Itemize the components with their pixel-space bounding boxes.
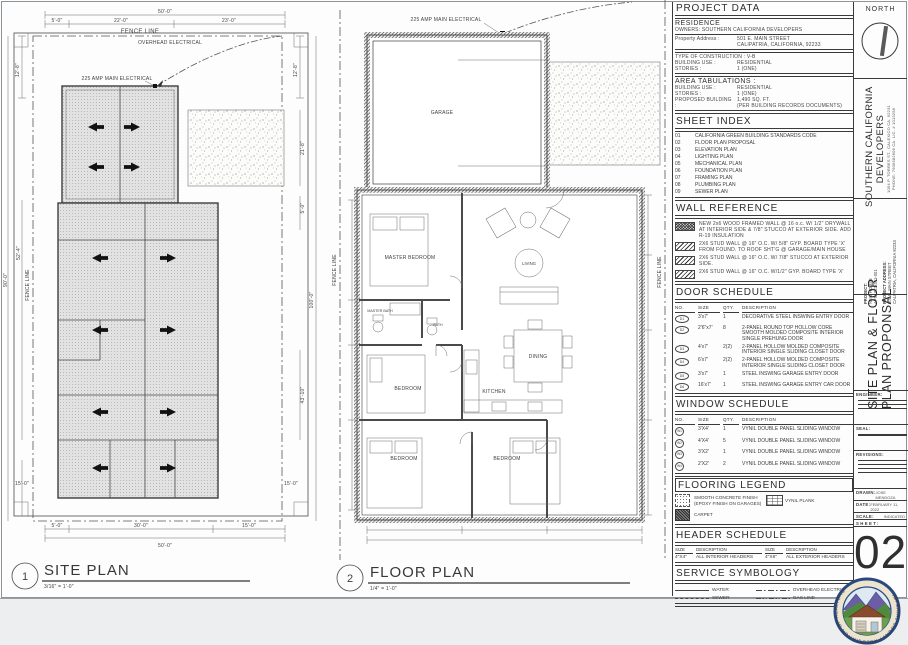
- svg-text:5'-0": 5'-0": [52, 18, 63, 24]
- date-label: DATE:: [856, 502, 870, 512]
- date-value: FEBRUARY 11, 2022: [870, 502, 905, 512]
- company-phone-license: PHONE: 7605582606 CA. LIC. # 1013258: [891, 91, 896, 207]
- sheet-index-list: 01CALIFORNIA GREEN BUILDING STANDARDS CO…: [675, 133, 853, 196]
- wall-reference-heading: WALL REFERENCE: [675, 202, 853, 214]
- floor-electrical-annotation: 225 AMP MAIN ELECTRICAL: [411, 2, 632, 36]
- carpet-swatch: [675, 509, 690, 521]
- sewer-label: SEWER: [712, 596, 750, 601]
- sewer-line-symbol: [675, 598, 709, 599]
- property-address-2: CALIPATRIA, CALIFORNIA, 92233: [737, 42, 853, 48]
- svg-text:21'-8": 21'-8": [300, 141, 306, 155]
- bath-label: BATH: [433, 323, 443, 327]
- svg-text:15'-0": 15'-0": [242, 523, 256, 529]
- door-schedule-table: NO. SIZE QTY. DESCRIPTION D13'x7'1DECORA…: [675, 304, 853, 392]
- bedroom1-label: BEDROOM: [394, 386, 421, 392]
- svg-text:43'-10": 43'-10": [300, 387, 306, 404]
- stories-value: 1 (ONE): [737, 66, 853, 72]
- fence-line-label-vertical: FENCE LINE: [25, 269, 31, 301]
- window-tag: W3: [675, 450, 684, 459]
- title-block: PROJECT DATA RESIDENCE OWNERS: SOUTHERN …: [672, 2, 853, 596]
- drawn-label: DRAWN:: [856, 490, 875, 500]
- site-plan-tag: 1: [22, 571, 28, 583]
- site-plan-title-text: SITE PLAN: [44, 562, 130, 579]
- site-plan-drawing: FENCE LINE FENCE LINE 50'-0" 5'-0" 22'-0…: [0, 0, 332, 598]
- bottom-dimensions: 5'-0" 30'-0" 15'-0" 50'-0": [45, 523, 285, 549]
- door-schedule-heading: DOOR SCHEDULE: [675, 286, 853, 298]
- floor-main-electrical-label: 225 AMP MAIN ELECTRICAL: [411, 17, 482, 23]
- bedroom2-label: BEDROOM: [390, 456, 417, 462]
- svg-text:22'-0": 22'-0": [114, 18, 128, 24]
- garage-label: GARAGE: [431, 110, 454, 116]
- owners-line: OWNERS: SOUTHERN CALIFORNIA DEVELOPERS: [675, 27, 853, 33]
- floor-patio-area: [547, 62, 660, 165]
- door-tag: D1: [675, 315, 689, 323]
- window-tag: W1: [675, 427, 684, 436]
- door-tag: D5: [675, 372, 689, 380]
- site-main-electrical-label: 225 AMP MAIN ELECTRICAL: [82, 76, 153, 82]
- wall-ref-2: 2X6 STUD WALL @ 16" O.C. W/ 5/8" GYP. BO…: [699, 241, 853, 253]
- residence-heading: RESIDENCE: [675, 20, 853, 27]
- master-bath-label: MASTER BATH: [367, 309, 393, 313]
- wall-swatch-diag-1: [675, 242, 695, 251]
- top-dimensions: 50'-0" 5'-0" 22'-0" 23'-0": [45, 9, 285, 28]
- window-schedule-table: NO. SIZE QTY. DESCRIPTION W13'X4'1VYNIL …: [675, 416, 853, 472]
- gas-line-symbol: [756, 598, 790, 599]
- svg-text:12'-8": 12'-8": [15, 63, 21, 77]
- flooring-legend: SMOOTH CONCRETE FINISH (EPOXY FINISH ON …: [675, 494, 853, 523]
- wall-ref-4: 2X6 STUD WALL @ 16" O.C. W/1/2" GYP. BOA…: [699, 269, 853, 275]
- seal-label: SEAL:: [856, 426, 908, 431]
- revisions-label: REVISIONS:: [856, 452, 908, 457]
- header-schedule-heading: HEADER SCHEDULE: [675, 529, 853, 541]
- svg-text:52'-4": 52'-4": [16, 246, 22, 260]
- door-tag: D4: [675, 358, 689, 366]
- site-electrical-annotations: 225 AMP MAIN ELECTRICAL OVERHEAD ELECTRI…: [82, 36, 282, 88]
- window-tag: W2: [675, 439, 684, 448]
- floor-fence-label-left: FENCE LINE: [332, 254, 338, 286]
- floor-plan-title-text: FLOOR PLAN: [370, 564, 475, 581]
- site-patio-area: [188, 110, 284, 186]
- floor-fence-label-right: FENCE LINE: [657, 256, 663, 288]
- svg-text:30'-0": 30'-0": [134, 523, 148, 529]
- drawing-sheet: FENCE LINE FENCE LINE 50'-0" 5'-0" 22'-0…: [0, 0, 908, 645]
- project-data-heading: PROJECT DATA: [675, 2, 853, 14]
- association-logo: IMPERIAL COUNTY ASSOCIATION OF REALTORS: [826, 576, 908, 645]
- svg-text:23'-0": 23'-0": [222, 18, 236, 24]
- svg-text:12'-8": 12'-8": [293, 63, 299, 77]
- door-tag: D2: [675, 326, 689, 334]
- scale-value: INDICATED: [884, 514, 905, 519]
- drawn-value: JOSE MENDOZA: [875, 490, 905, 500]
- door-tag: D3: [675, 345, 689, 353]
- floor-plan-tag: 2: [347, 573, 353, 585]
- north-compass-icon: [854, 13, 907, 69]
- sheet-index-heading: SHEET INDEX: [675, 115, 853, 127]
- company-name-line2: DEVELOPERS: [875, 91, 886, 207]
- sheet-number: 02: [854, 527, 907, 577]
- svg-text:5'-0": 5'-0": [300, 203, 306, 214]
- fence-line-label: FENCE LINE: [121, 29, 159, 35]
- vinyl-plank-label: VYNIL PLANK: [785, 498, 853, 503]
- svg-text:15'-0": 15'-0": [284, 481, 298, 487]
- water-label: WATER: [712, 588, 750, 593]
- wall-swatch-crosshatch: [675, 222, 695, 231]
- area-tabulations-heading: AREA TABULATIONS :: [675, 78, 853, 85]
- bedroom3-label: BEDROOM: [493, 456, 520, 462]
- svg-text:50'-0": 50'-0": [158, 9, 172, 15]
- wall-swatch-diag-2: [675, 256, 695, 265]
- north-label: NORTH: [854, 2, 907, 13]
- title-strip: NORTH SOUTHERN CALIFORNIA DEVELOPERS 105…: [853, 2, 907, 596]
- proposed-building-label: PROPOSED BUILDING :: [675, 97, 733, 109]
- svg-text:5'-0": 5'-0": [52, 523, 63, 529]
- concrete-swatch: [675, 494, 690, 507]
- water-line-symbol: [675, 590, 709, 591]
- property-address-label: Property Address :: [675, 36, 733, 48]
- flooring-legend-heading: FLOORING LEGEND: [677, 479, 851, 491]
- master-bedroom-label: MASTER BEDROOM: [385, 255, 436, 261]
- site-plan-scale: 3/16" = 1'-0": [44, 584, 74, 590]
- concrete-label: SMOOTH CONCRETE FINISH (EPOXY FINISH ON …: [694, 495, 762, 506]
- carpet-label: CARPET: [694, 512, 762, 517]
- stories-label: STORIES :: [675, 66, 733, 72]
- door-tag: D6: [675, 383, 689, 391]
- window-tag: W4: [675, 462, 684, 471]
- kitchen-label: KITCHEN: [482, 389, 506, 395]
- garage-room: GARAGE: [367, 35, 547, 190]
- overhead-electrical-symbol: [756, 590, 790, 591]
- right-dimensions: 12'-8" 21'-8" 5'-0" 100'-0" 43'-10" 15'-…: [284, 36, 316, 521]
- proposed-building-2: (PER BUILDING RECORDS DOCUMENTS): [737, 103, 853, 109]
- dining-label: DINING: [529, 354, 548, 360]
- window-schedule-heading: WINDOW SCHEDULE: [675, 398, 853, 410]
- site-plan-title: 1 SITE PLAN 3/16" = 1'-0": [12, 562, 250, 590]
- scale-label: SCALE:: [856, 514, 874, 519]
- wall-swatch-diag-3: [675, 270, 695, 279]
- wall-ref-1: NEW 2x6 WOOD FRAMED WALL @ 16 o.c. W/ 1/…: [699, 221, 853, 239]
- living-label: LIVING: [522, 261, 536, 266]
- floor-plan-scale: 1/4" = 1'-0": [370, 586, 397, 592]
- svg-text:100'-0": 100'-0": [309, 292, 315, 309]
- floor-plan-drawing: FENCE LINE FENCE LINE 225 AMP MAIN ELECT…: [332, 0, 670, 598]
- company-name-line1: SOUTHERN CALIFORNIA: [864, 91, 875, 207]
- engineer-label: ENGINEER:: [856, 392, 908, 397]
- svg-text:50'-0": 50'-0": [158, 543, 172, 549]
- vinyl-plank-swatch: [766, 495, 783, 506]
- wall-ref-3: 2X6 STUD WALL @ 16" O.C. W/ 7/8" STUCCO …: [699, 255, 853, 267]
- floor-plan-title: 2 FLOOR PLAN 1/4" = 1'-0": [337, 564, 630, 592]
- header-schedule-table: SIZE DESCRIPTION SIZE DESCRIPTION 4"X4" …: [675, 547, 853, 561]
- overhead-electrical-label: OVERHEAD ELECTRICAL: [138, 40, 202, 46]
